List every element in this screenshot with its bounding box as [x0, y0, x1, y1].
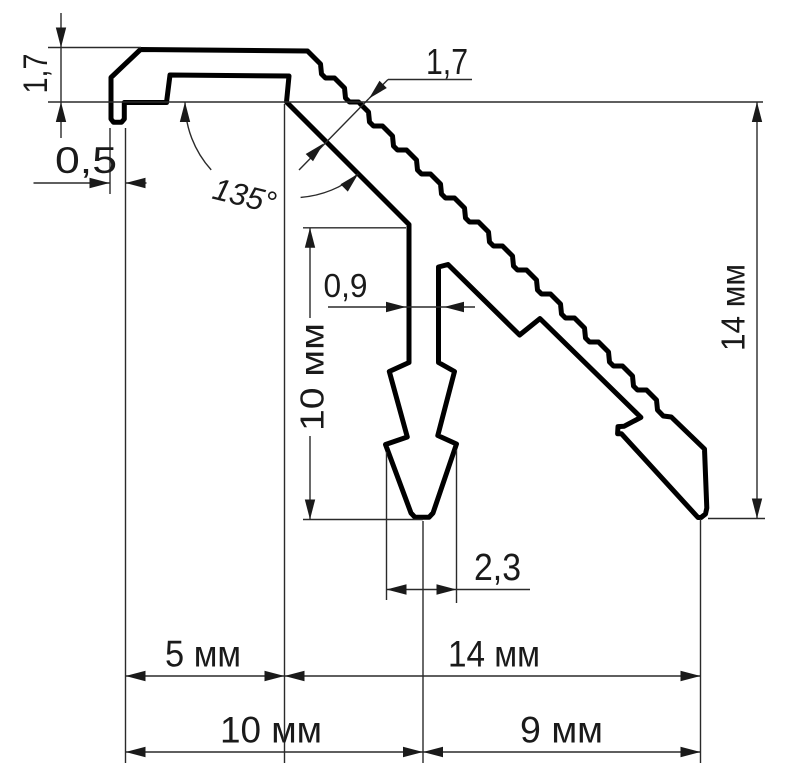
svg-text:0,9: 0,9: [324, 267, 368, 304]
svg-text:1,7: 1,7: [426, 41, 468, 82]
svg-text:10 мм: 10 мм: [220, 710, 322, 751]
svg-text:0,5: 0,5: [55, 140, 117, 181]
svg-text:9 мм: 9 мм: [520, 710, 603, 751]
svg-text:5 мм: 5 мм: [165, 634, 241, 675]
svg-text:2,3: 2,3: [474, 547, 521, 589]
svg-text:14 мм: 14 мм: [715, 264, 752, 351]
svg-text:14 мм: 14 мм: [448, 634, 540, 675]
svg-text:1,7: 1,7: [17, 54, 55, 94]
svg-text:10 мм: 10 мм: [294, 323, 331, 431]
